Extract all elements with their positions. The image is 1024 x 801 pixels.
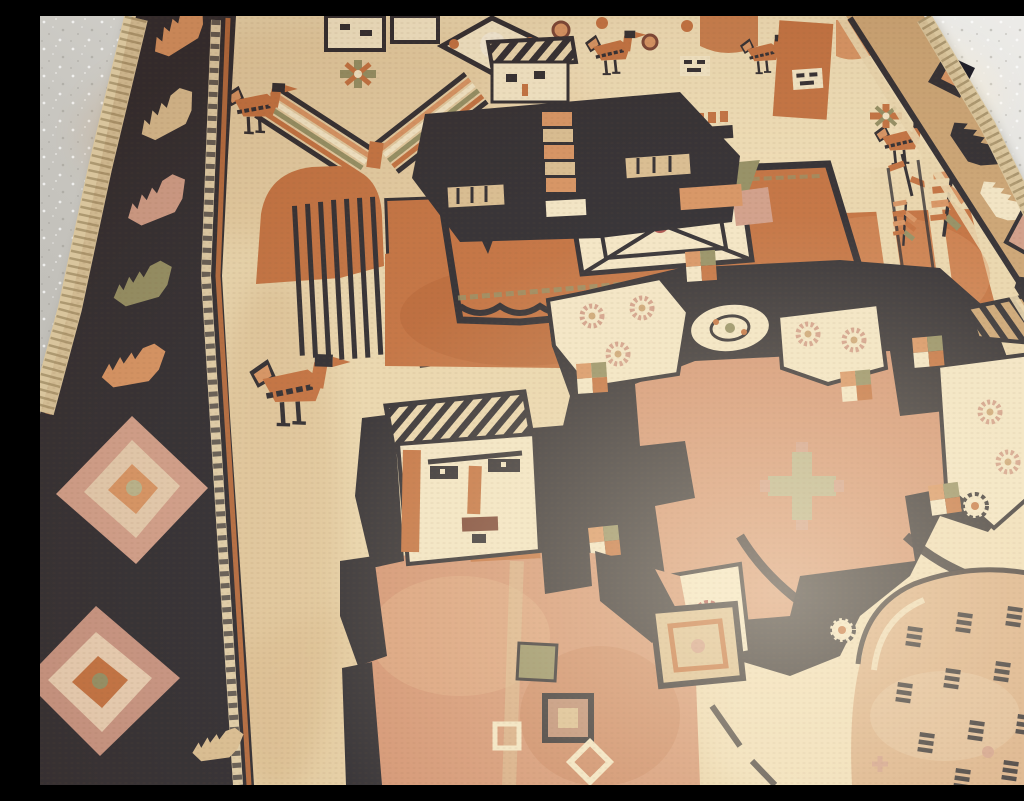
light-falloff	[40, 16, 1024, 785]
rug-photo-canvas	[40, 16, 1024, 785]
photo-of-rug: Antique pictorial tribal rug lying at an…	[40, 16, 1024, 785]
pictorial-rug	[40, 16, 1024, 785]
